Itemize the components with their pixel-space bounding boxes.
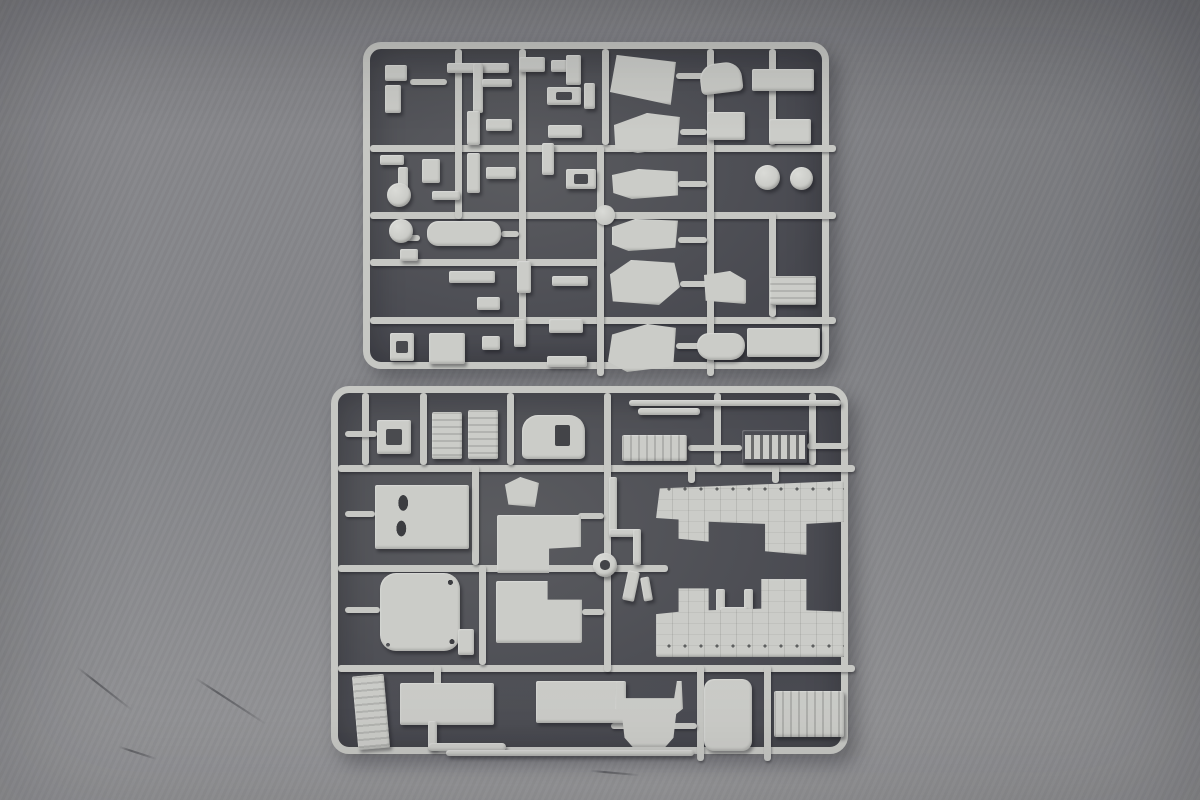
part-tub-round-part <box>697 333 745 360</box>
surface-scratch <box>194 677 266 725</box>
part-box-part-b <box>769 119 811 144</box>
part-hull-glacis-panel-1 <box>610 55 676 105</box>
surface-scratch <box>77 667 133 712</box>
part-post-pair <box>542 143 554 175</box>
part-floor-panel-a <box>400 683 494 725</box>
sprue-runner <box>507 393 514 465</box>
sprue-runner <box>697 665 704 761</box>
sprue-frame-top <box>363 42 829 369</box>
part-knob-bar <box>449 271 495 283</box>
part-floor-panel-b <box>536 681 626 723</box>
part-side-skirt-panel <box>352 674 390 751</box>
sprue-runner <box>678 237 707 243</box>
part-door-panel <box>704 679 752 751</box>
part-step-bar-a <box>486 119 512 131</box>
sprue-frame-bottom <box>331 386 848 754</box>
part-top-plate <box>752 69 814 91</box>
sprue-runner <box>707 49 714 376</box>
part-bench-frame <box>548 125 582 138</box>
part-cross-bar <box>482 79 512 87</box>
part-notched-block <box>429 333 465 364</box>
part-hook-rod <box>517 261 531 293</box>
part-long-rod <box>446 750 694 756</box>
part-hull-glacis-panel-6 <box>608 324 676 372</box>
part-step-bar-b <box>486 167 516 179</box>
part-ribbed-plate <box>770 276 816 305</box>
part-hull-side-upper <box>656 481 844 555</box>
sprue-runner <box>680 281 707 287</box>
part-hook-clip <box>458 629 474 655</box>
part-pin-part-a <box>514 319 526 347</box>
sprue-runner <box>582 609 604 615</box>
photo-model-kit-sprues <box>0 0 1200 800</box>
sprue-runner <box>688 465 695 483</box>
surface-scratch <box>590 770 640 776</box>
part-striped-panel-a <box>432 412 462 459</box>
part-axle-stem <box>473 63 483 113</box>
part-track-grille-part <box>742 430 808 464</box>
sprue-runner <box>345 607 380 613</box>
surface-scratch <box>119 746 158 760</box>
part-box-part-a <box>707 112 745 140</box>
part-clip-part-b <box>640 576 653 601</box>
sprue-runner <box>688 445 742 451</box>
sprue-runner <box>597 145 604 376</box>
sprue-runner <box>772 465 779 483</box>
part-barrel-rod <box>629 400 841 406</box>
part-tiny-angle-part <box>422 159 440 183</box>
part-elbow-clip <box>477 297 500 310</box>
part-striped-panel-b <box>468 410 498 459</box>
part-hull-step-panel-3 <box>612 169 678 199</box>
sprue-runner <box>410 79 447 85</box>
part-winch-block <box>505 477 539 507</box>
part-clip-tiny <box>551 60 567 72</box>
part-tiny-t-part-a <box>380 155 404 165</box>
sprue-runner <box>345 511 375 517</box>
part-radiator-panel-small <box>622 435 687 461</box>
part-hull-glacis-panel-5 <box>610 260 680 305</box>
part-curved-roof-panel <box>698 61 743 96</box>
sprue-runner <box>345 431 377 437</box>
part-hull-step-panel-4 <box>612 219 678 251</box>
part-pipe-s-vertical-2 <box>633 529 641 565</box>
part-radiator-panel-large <box>774 691 844 737</box>
sprue-runner <box>362 393 369 465</box>
part-road-wheel-a <box>387 183 411 207</box>
part-corner-bracket <box>390 333 414 361</box>
part-angle-clip-b <box>385 85 401 113</box>
part-hull-glacis-panel-2 <box>614 113 680 153</box>
part-clip-part-a <box>622 570 640 602</box>
part-mini-mount <box>400 249 418 261</box>
sprue-runner <box>680 129 707 135</box>
part-bracket-top <box>519 57 545 72</box>
part-pin-part-b <box>549 319 583 333</box>
part-figure-post <box>584 83 595 109</box>
part-wheel-dome-b <box>790 167 813 190</box>
part-hatch-round-panel <box>380 573 460 651</box>
part-hull-tub-part <box>427 221 501 246</box>
part-panel-with-two-holes <box>375 485 469 549</box>
part-sprue-gate-hub <box>593 553 617 577</box>
sprue-runner <box>602 49 609 145</box>
part-wheel-dome-a <box>755 165 780 190</box>
part-road-wheel-b <box>389 219 413 243</box>
sprue-gate-knob <box>595 205 615 225</box>
part-rail-bar <box>547 356 587 367</box>
part-bench-stand <box>547 87 581 105</box>
part-angle-clip-a <box>385 65 407 81</box>
part-clip-small <box>482 336 500 350</box>
part-h-table-bracket <box>566 169 596 189</box>
part-l-bracket <box>566 55 581 85</box>
sprue-runner <box>338 665 855 672</box>
part-channel-rail-b <box>467 153 480 193</box>
sprue-runner <box>472 465 479 565</box>
part-arch-hatch-panel <box>522 415 585 459</box>
part-plate-long <box>747 328 820 357</box>
part-rod-fitting <box>638 408 700 415</box>
part-step-panel-b <box>496 581 582 643</box>
part-ring-frame-part <box>377 420 411 454</box>
sprue-runner <box>807 443 848 449</box>
sprue-runner <box>764 665 771 761</box>
sprue-runner <box>479 565 486 665</box>
part-tiny-bar-part <box>432 191 460 200</box>
part-angled-block <box>704 271 746 304</box>
sprue-runner <box>501 231 519 237</box>
sprue-runner <box>420 393 427 465</box>
part-rod-flat <box>552 276 588 286</box>
part-channel-rail-a <box>467 111 480 145</box>
sprue-runner <box>678 181 707 187</box>
part-pipe-s-vertical <box>609 477 617 535</box>
sprue-runner <box>578 513 604 519</box>
